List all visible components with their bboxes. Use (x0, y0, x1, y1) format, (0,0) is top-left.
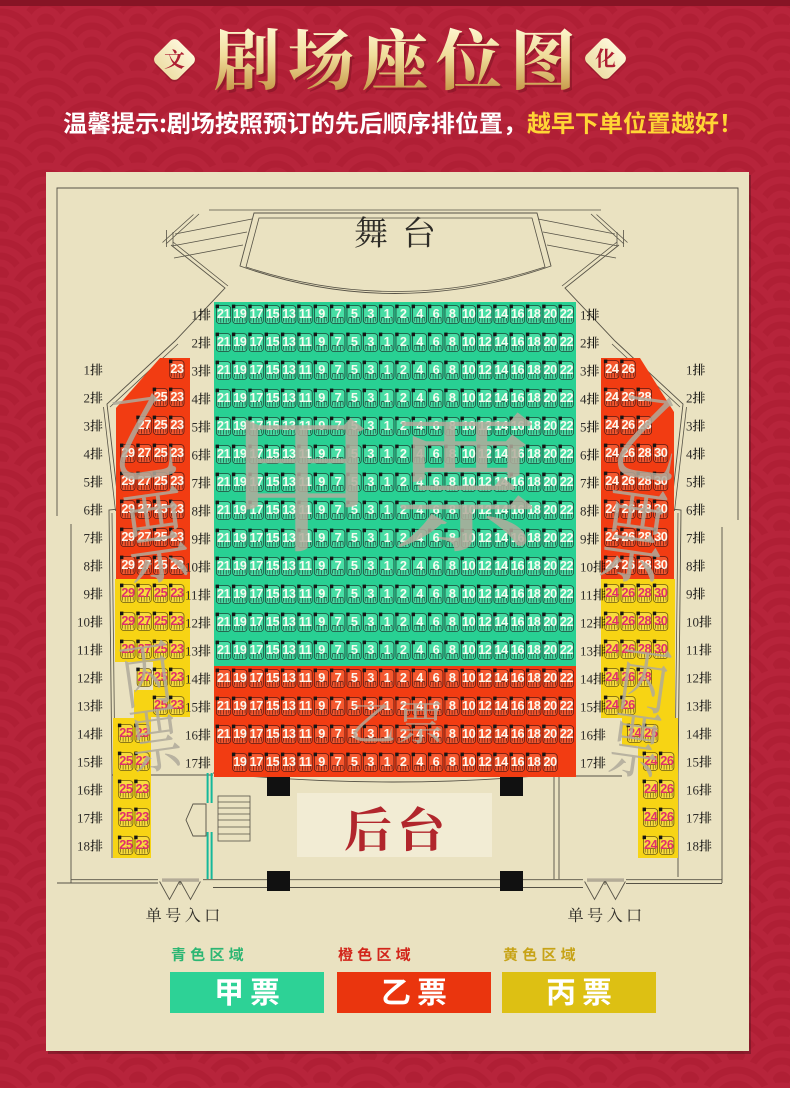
svg-text:21: 21 (217, 727, 231, 741)
svg-text:13: 13 (282, 447, 296, 461)
svg-text:14: 14 (495, 559, 509, 573)
svg-text:7: 7 (335, 447, 342, 461)
svg-text:12: 12 (478, 587, 492, 601)
svg-text:17: 17 (250, 559, 264, 573)
svg-text:10: 10 (77, 615, 90, 630)
svg-text:25: 25 (154, 390, 168, 404)
svg-text:23: 23 (136, 810, 150, 824)
svg-text:20: 20 (544, 727, 558, 741)
svg-text:4: 4 (416, 391, 423, 405)
svg-text:16: 16 (511, 615, 525, 629)
svg-text:25: 25 (119, 782, 133, 796)
svg-text:20: 20 (544, 531, 558, 545)
svg-text:26: 26 (660, 838, 674, 852)
svg-text:10: 10 (686, 615, 699, 630)
svg-text:22: 22 (560, 643, 574, 657)
svg-text:18: 18 (527, 307, 541, 321)
svg-text:1: 1 (384, 475, 391, 489)
svg-text:22: 22 (560, 615, 574, 629)
svg-text:17: 17 (250, 531, 264, 545)
svg-text:6: 6 (433, 559, 440, 573)
svg-text:23: 23 (170, 446, 184, 460)
svg-text:12: 12 (478, 307, 492, 321)
svg-text:22: 22 (560, 699, 574, 713)
svg-text:8: 8 (192, 504, 199, 519)
svg-text:17: 17 (77, 811, 91, 826)
svg-text:21: 21 (217, 307, 231, 321)
svg-text:22: 22 (560, 335, 574, 349)
svg-text:15: 15 (266, 447, 280, 461)
svg-text:13: 13 (282, 475, 296, 489)
svg-text:16: 16 (511, 587, 525, 601)
svg-text:11: 11 (299, 307, 312, 321)
svg-text:10: 10 (462, 727, 476, 741)
svg-text:10: 10 (462, 335, 476, 349)
svg-text:13: 13 (282, 363, 296, 377)
svg-text:4: 4 (416, 643, 423, 657)
svg-text:7: 7 (335, 643, 342, 657)
svg-text:3: 3 (192, 364, 199, 379)
svg-text:7: 7 (580, 476, 587, 491)
svg-text:14: 14 (77, 727, 91, 742)
svg-text:13: 13 (580, 644, 593, 659)
svg-text:15: 15 (266, 559, 280, 573)
svg-text:21: 21 (217, 531, 231, 545)
svg-text:14: 14 (495, 755, 509, 769)
svg-text:17: 17 (185, 756, 199, 771)
svg-text:8: 8 (449, 727, 456, 741)
svg-text:15: 15 (266, 503, 280, 517)
svg-text:24: 24 (605, 362, 619, 376)
svg-text:23: 23 (170, 418, 184, 432)
svg-text:29: 29 (121, 558, 135, 572)
svg-text:6: 6 (433, 447, 440, 461)
svg-text:16: 16 (77, 783, 91, 798)
svg-text:21: 21 (217, 419, 231, 433)
svg-text:8: 8 (449, 671, 456, 685)
svg-text:4: 4 (416, 335, 423, 349)
svg-text:6: 6 (433, 671, 440, 685)
svg-text:15: 15 (266, 615, 280, 629)
svg-text:25: 25 (154, 614, 168, 628)
svg-text:20: 20 (544, 391, 558, 405)
svg-text:17: 17 (250, 755, 264, 769)
svg-text:22: 22 (560, 727, 574, 741)
svg-text:11: 11 (580, 588, 593, 603)
svg-text:4: 4 (84, 447, 91, 462)
svg-text:12: 12 (77, 671, 90, 686)
svg-text:2: 2 (400, 755, 407, 769)
svg-text:2: 2 (686, 391, 693, 406)
svg-text:6: 6 (580, 448, 587, 463)
svg-text:5: 5 (351, 615, 358, 629)
svg-text:11: 11 (299, 755, 312, 769)
svg-text:3: 3 (367, 755, 374, 769)
svg-text:7: 7 (335, 503, 342, 517)
svg-text:10: 10 (462, 615, 476, 629)
svg-text:17: 17 (250, 727, 264, 741)
svg-text:17: 17 (250, 699, 264, 713)
svg-text:16: 16 (511, 727, 525, 741)
svg-text:13: 13 (282, 727, 296, 741)
svg-text:9: 9 (318, 307, 325, 321)
svg-text:11: 11 (299, 643, 312, 657)
svg-text:24: 24 (605, 698, 619, 712)
svg-text:8: 8 (449, 391, 456, 405)
svg-text:1: 1 (384, 643, 391, 657)
svg-text:2: 2 (400, 447, 407, 461)
svg-text:7: 7 (335, 335, 342, 349)
svg-text:6: 6 (433, 755, 440, 769)
svg-text:12: 12 (478, 335, 492, 349)
svg-text:8: 8 (449, 363, 456, 377)
svg-text:29: 29 (121, 530, 135, 544)
svg-text:21: 21 (217, 335, 231, 349)
svg-text:12: 12 (478, 699, 492, 713)
svg-text:1: 1 (384, 363, 391, 377)
svg-text:14: 14 (495, 335, 509, 349)
svg-text:18: 18 (527, 447, 541, 461)
svg-text:20: 20 (544, 615, 558, 629)
svg-text:24: 24 (605, 418, 619, 432)
svg-text:21: 21 (217, 391, 231, 405)
svg-text:18: 18 (686, 839, 699, 854)
svg-text:3: 3 (367, 615, 374, 629)
svg-text:13: 13 (686, 699, 699, 714)
svg-text:17: 17 (250, 335, 264, 349)
svg-text:8: 8 (449, 615, 456, 629)
svg-text:13: 13 (282, 587, 296, 601)
svg-text:2: 2 (400, 671, 407, 685)
svg-text:18: 18 (527, 643, 541, 657)
svg-text:8: 8 (449, 559, 456, 573)
svg-text:5: 5 (351, 531, 358, 545)
svg-text:26: 26 (622, 362, 636, 376)
svg-text:22: 22 (560, 391, 574, 405)
svg-text:10: 10 (462, 671, 476, 685)
svg-text:7: 7 (335, 727, 342, 741)
svg-text:6: 6 (433, 363, 440, 377)
svg-text:15: 15 (266, 755, 280, 769)
svg-text:14: 14 (495, 671, 509, 685)
svg-text:2: 2 (400, 335, 407, 349)
svg-text:15: 15 (266, 643, 280, 657)
svg-text:19: 19 (233, 363, 247, 377)
svg-text:10: 10 (462, 559, 476, 573)
svg-text:4: 4 (416, 587, 423, 601)
svg-text:5: 5 (351, 363, 358, 377)
svg-text:14: 14 (495, 587, 509, 601)
svg-text:2: 2 (84, 391, 91, 406)
svg-text:8: 8 (449, 699, 456, 713)
svg-text:3: 3 (367, 475, 374, 489)
svg-text:13: 13 (185, 644, 198, 659)
svg-text:15: 15 (266, 671, 280, 685)
svg-text:7: 7 (335, 587, 342, 601)
svg-text:17: 17 (250, 307, 264, 321)
svg-text:26: 26 (660, 810, 674, 824)
svg-text:21: 21 (217, 503, 231, 517)
svg-text:23: 23 (170, 614, 184, 628)
svg-text:9: 9 (318, 699, 325, 713)
svg-text:13: 13 (282, 615, 296, 629)
svg-text:2: 2 (400, 615, 407, 629)
svg-text:8: 8 (449, 755, 456, 769)
svg-text:1: 1 (384, 615, 391, 629)
svg-text:22: 22 (560, 447, 574, 461)
svg-text:6: 6 (433, 531, 440, 545)
svg-text:1: 1 (384, 671, 391, 685)
svg-text:16: 16 (511, 755, 525, 769)
svg-text:12: 12 (478, 531, 492, 545)
svg-text:5: 5 (686, 475, 693, 490)
svg-text:11: 11 (299, 559, 312, 573)
svg-text:19: 19 (233, 335, 247, 349)
svg-text:20: 20 (544, 671, 558, 685)
svg-text:22: 22 (560, 363, 574, 377)
svg-text:18: 18 (527, 363, 541, 377)
svg-text:14: 14 (580, 672, 594, 687)
svg-text:15: 15 (266, 587, 280, 601)
svg-text:30: 30 (654, 558, 668, 572)
svg-text:2: 2 (400, 643, 407, 657)
svg-text:5: 5 (351, 671, 358, 685)
svg-text:3: 3 (367, 363, 374, 377)
svg-text:6: 6 (433, 643, 440, 657)
svg-text:6: 6 (192, 448, 199, 463)
svg-text:18: 18 (527, 559, 541, 573)
svg-text:28: 28 (638, 586, 652, 600)
svg-text:17: 17 (250, 643, 264, 657)
svg-text:5: 5 (351, 335, 358, 349)
svg-text:21: 21 (217, 559, 231, 573)
svg-text:12: 12 (478, 363, 492, 377)
svg-text:7: 7 (84, 531, 91, 546)
svg-text:15: 15 (185, 700, 198, 715)
svg-text:21: 21 (217, 363, 231, 377)
svg-text:19: 19 (233, 503, 247, 517)
svg-text:5: 5 (351, 559, 358, 573)
svg-text:15: 15 (266, 307, 280, 321)
svg-text:9: 9 (318, 727, 325, 741)
svg-text:14: 14 (495, 447, 509, 461)
svg-text:19: 19 (233, 615, 247, 629)
svg-text:19: 19 (233, 531, 247, 545)
svg-text:25: 25 (119, 838, 133, 852)
svg-text:24: 24 (605, 642, 619, 656)
svg-text:7: 7 (335, 531, 342, 545)
svg-text:17: 17 (250, 587, 264, 601)
svg-text:13: 13 (282, 335, 296, 349)
svg-text:1: 1 (84, 363, 91, 378)
svg-text:19: 19 (233, 391, 247, 405)
svg-text:30: 30 (654, 586, 668, 600)
svg-text:18: 18 (527, 755, 541, 769)
svg-text:29: 29 (121, 586, 135, 600)
svg-text:9: 9 (318, 503, 325, 517)
svg-text:13: 13 (282, 391, 296, 405)
svg-text:20: 20 (544, 335, 558, 349)
svg-text:11: 11 (299, 727, 312, 741)
svg-text:5: 5 (351, 755, 358, 769)
svg-text:18: 18 (527, 587, 541, 601)
svg-text:2: 2 (400, 475, 407, 489)
svg-text:1: 1 (192, 308, 199, 323)
svg-text:26: 26 (660, 782, 674, 796)
svg-text:20: 20 (544, 503, 558, 517)
svg-text:4: 4 (416, 307, 423, 321)
svg-text:13: 13 (77, 699, 90, 714)
svg-text:24: 24 (605, 446, 619, 460)
svg-text:15: 15 (266, 363, 280, 377)
svg-text:1: 1 (384, 447, 391, 461)
svg-text:7: 7 (335, 559, 342, 573)
svg-text:14: 14 (495, 615, 509, 629)
svg-text:16: 16 (185, 728, 199, 743)
svg-text:5: 5 (84, 475, 91, 490)
svg-text:8: 8 (449, 307, 456, 321)
svg-text:26: 26 (660, 754, 674, 768)
svg-text:23: 23 (170, 390, 184, 404)
svg-text:2: 2 (580, 336, 587, 351)
svg-text:10: 10 (462, 755, 476, 769)
svg-text:11: 11 (299, 391, 312, 405)
svg-text:13: 13 (282, 503, 296, 517)
svg-text:10: 10 (462, 363, 476, 377)
svg-text:4: 4 (192, 392, 199, 407)
svg-text:4: 4 (686, 447, 693, 462)
svg-text:1: 1 (384, 503, 391, 517)
svg-text:2: 2 (400, 587, 407, 601)
svg-text:21: 21 (217, 671, 231, 685)
svg-text:25: 25 (119, 726, 133, 740)
svg-text:8: 8 (84, 559, 91, 574)
svg-text:16: 16 (511, 643, 525, 657)
svg-text:9: 9 (686, 587, 693, 602)
svg-text:16: 16 (511, 335, 525, 349)
svg-text:23: 23 (170, 362, 184, 376)
svg-text:7: 7 (335, 671, 342, 685)
svg-text:1: 1 (384, 531, 391, 545)
svg-text:23: 23 (136, 782, 150, 796)
svg-text:22: 22 (560, 419, 574, 433)
svg-text:24: 24 (644, 838, 658, 852)
svg-text:20: 20 (544, 559, 558, 573)
svg-text:18: 18 (527, 727, 541, 741)
svg-text:6: 6 (433, 307, 440, 321)
svg-text:19: 19 (233, 671, 247, 685)
svg-text:4: 4 (416, 559, 423, 573)
svg-text:21: 21 (217, 447, 231, 461)
svg-text:1: 1 (384, 391, 391, 405)
svg-text:4: 4 (416, 671, 423, 685)
svg-text:23: 23 (136, 838, 150, 852)
svg-text:7: 7 (335, 699, 342, 713)
svg-text:9: 9 (318, 643, 325, 657)
svg-text:20: 20 (544, 643, 558, 657)
svg-text:20: 20 (544, 419, 558, 433)
svg-text:24: 24 (644, 782, 658, 796)
svg-text:12: 12 (478, 391, 492, 405)
svg-text:19: 19 (233, 727, 247, 741)
svg-text:9: 9 (318, 335, 325, 349)
svg-text:9: 9 (318, 615, 325, 629)
svg-text:14: 14 (686, 727, 700, 742)
svg-text:1: 1 (384, 419, 391, 433)
svg-text:24: 24 (644, 810, 658, 824)
svg-text:12: 12 (478, 671, 492, 685)
svg-text:1: 1 (686, 363, 693, 378)
svg-text:15: 15 (77, 755, 90, 770)
svg-text:21: 21 (217, 699, 231, 713)
svg-text:13: 13 (282, 699, 296, 713)
svg-text:17: 17 (250, 363, 264, 377)
svg-text:11: 11 (299, 615, 312, 629)
svg-text:13: 13 (282, 671, 296, 685)
svg-text:18: 18 (527, 671, 541, 685)
svg-text:21: 21 (217, 475, 231, 489)
svg-text:23: 23 (170, 670, 184, 684)
svg-text:12: 12 (478, 727, 492, 741)
svg-text:16: 16 (580, 728, 594, 743)
svg-text:16: 16 (511, 307, 525, 321)
svg-text:9: 9 (84, 587, 91, 602)
svg-text:19: 19 (233, 559, 247, 573)
svg-text:3: 3 (367, 503, 374, 517)
svg-text:28: 28 (638, 390, 652, 404)
svg-text:2: 2 (192, 336, 199, 351)
svg-text:9: 9 (318, 587, 325, 601)
svg-text:19: 19 (233, 755, 247, 769)
svg-text:18: 18 (77, 839, 90, 854)
svg-text:28: 28 (638, 446, 652, 460)
svg-text:7: 7 (335, 391, 342, 405)
svg-text:3: 3 (367, 307, 374, 321)
svg-text:8: 8 (449, 643, 456, 657)
svg-text:8: 8 (686, 559, 693, 574)
svg-text:15: 15 (266, 335, 280, 349)
svg-text:28: 28 (638, 614, 652, 628)
svg-text:12: 12 (478, 755, 492, 769)
svg-text:3: 3 (686, 419, 693, 434)
svg-text:25: 25 (119, 810, 133, 824)
svg-text:7: 7 (686, 531, 693, 546)
svg-text:18: 18 (527, 391, 541, 405)
svg-text:11: 11 (299, 335, 312, 349)
svg-text:18: 18 (527, 699, 541, 713)
svg-text:18: 18 (527, 615, 541, 629)
svg-text:13: 13 (282, 307, 296, 321)
svg-text:27: 27 (138, 614, 152, 628)
svg-text:2: 2 (400, 559, 407, 573)
svg-text:14: 14 (495, 727, 509, 741)
svg-text:19: 19 (233, 447, 247, 461)
svg-text:1: 1 (580, 308, 587, 323)
svg-text:12: 12 (686, 671, 699, 686)
svg-text:17: 17 (580, 756, 594, 771)
svg-text:24: 24 (605, 474, 619, 488)
svg-text:23: 23 (170, 642, 184, 656)
svg-text:11: 11 (686, 643, 699, 658)
svg-text:20: 20 (544, 363, 558, 377)
svg-text:8: 8 (449, 335, 456, 349)
svg-text:17: 17 (250, 671, 264, 685)
svg-text:3: 3 (367, 643, 374, 657)
svg-text:12: 12 (478, 559, 492, 573)
svg-text:22: 22 (560, 475, 574, 489)
svg-text:24: 24 (605, 586, 619, 600)
svg-text:15: 15 (686, 755, 699, 770)
